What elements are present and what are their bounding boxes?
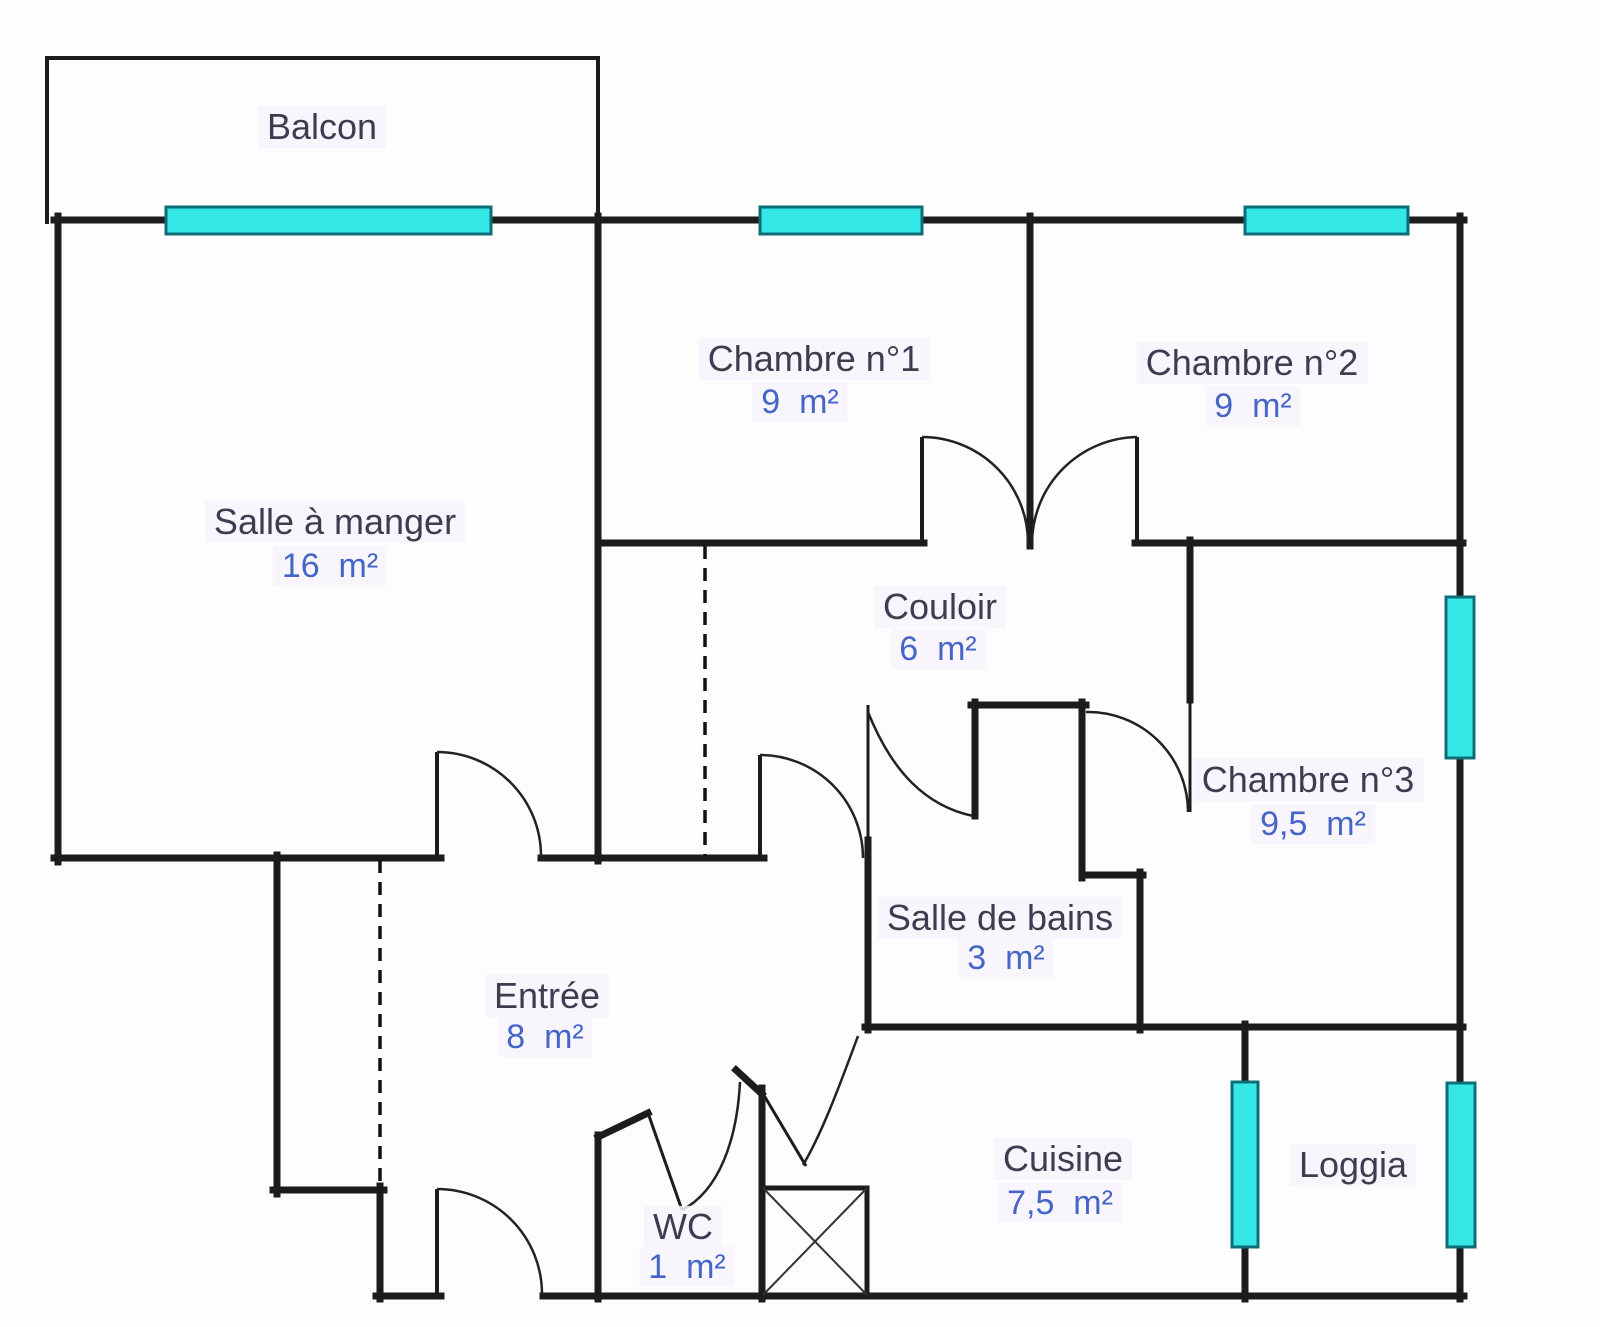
room-label-loggia: Loggia: [1290, 1144, 1416, 1186]
room-area-chambre-3: 9,5 m²: [1251, 804, 1375, 844]
dining-door-arc: [437, 752, 541, 856]
room-label-chambre-3: Chambre n°3: [1193, 759, 1424, 801]
bedroom3-door-arc: [1086, 712, 1188, 812]
room-label-salle-de-bains: Salle de bains: [878, 897, 1122, 939]
bathroom-door-arc: [868, 712, 973, 816]
bedroom1-door-arc: [922, 437, 1028, 543]
wc-door-stub-left: [598, 1113, 648, 1137]
room-area-salle-de-bains: 3 m²: [958, 938, 1053, 978]
kitchen-loggia-window: [1232, 1082, 1258, 1247]
room-area-salle-a-manger: 16 m²: [273, 546, 387, 586]
balcony-window: [166, 207, 491, 234]
room-label-entree: Entrée: [485, 975, 609, 1017]
room-label-cuisine: Cuisine: [994, 1138, 1132, 1180]
room-area-entree: 8 m²: [497, 1017, 592, 1057]
room-label-balcon: Balcon: [258, 106, 386, 148]
bedroom1-window: [760, 207, 922, 234]
room-area-couloir: 6 m²: [890, 629, 985, 669]
wc-door-leaf: [648, 1113, 682, 1210]
floor-plan: Balcon Salle à manger 16 m² Chambre n°1 …: [0, 0, 1600, 1327]
room-label-chambre-2: Chambre n°2: [1137, 342, 1368, 384]
bedroom2-door-arc: [1032, 437, 1137, 543]
room-area-wc: 1 m²: [639, 1247, 734, 1287]
room-label-couloir: Couloir: [874, 586, 1006, 628]
entry-corridor-door-arc: [760, 755, 863, 858]
room-area-chambre-2: 9 m²: [1205, 386, 1300, 426]
room-area-cuisine: 7,5 m²: [998, 1183, 1122, 1223]
kitchen-door-leaf: [762, 1092, 806, 1166]
loggia-window: [1447, 1083, 1475, 1247]
room-label-wc: WC: [644, 1206, 722, 1248]
bedroom3-window: [1446, 597, 1474, 758]
room-label-chambre-1: Chambre n°1: [699, 338, 930, 380]
room-area-chambre-1: 9 m²: [752, 382, 847, 422]
room-label-salle-a-manger: Salle à manger: [205, 501, 465, 543]
bedroom2-window: [1245, 207, 1408, 234]
floor-plan-drawing: [0, 0, 1600, 1327]
kitchen-door-arc: [803, 1036, 858, 1165]
wc-door-arc: [682, 1082, 740, 1210]
entrance-door-arc: [437, 1189, 542, 1294]
